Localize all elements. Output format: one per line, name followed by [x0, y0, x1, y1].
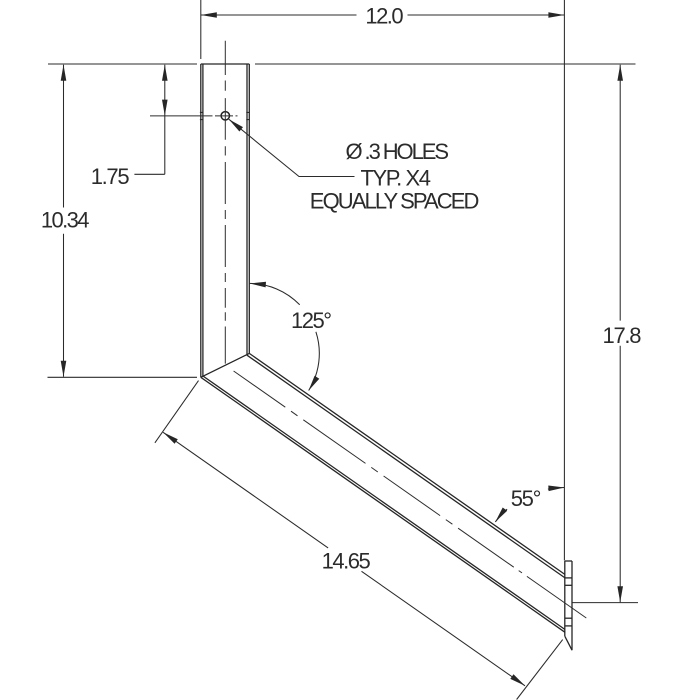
svg-text:1.75: 1.75	[91, 164, 130, 189]
svg-text:125°: 125°	[291, 308, 332, 333]
svg-text:55°: 55°	[511, 486, 542, 511]
svg-text:12.0: 12.0	[365, 3, 403, 28]
svg-text:10.34: 10.34	[41, 208, 90, 233]
svg-text:EQUALLY SPACED: EQUALLY SPACED	[310, 189, 480, 214]
svg-text:14.65: 14.65	[322, 549, 371, 574]
svg-text:Ø .3 HOLES: Ø .3 HOLES	[346, 139, 450, 164]
svg-text:17.8: 17.8	[603, 323, 642, 348]
svg-text:TYP. X4: TYP. X4	[361, 166, 432, 191]
